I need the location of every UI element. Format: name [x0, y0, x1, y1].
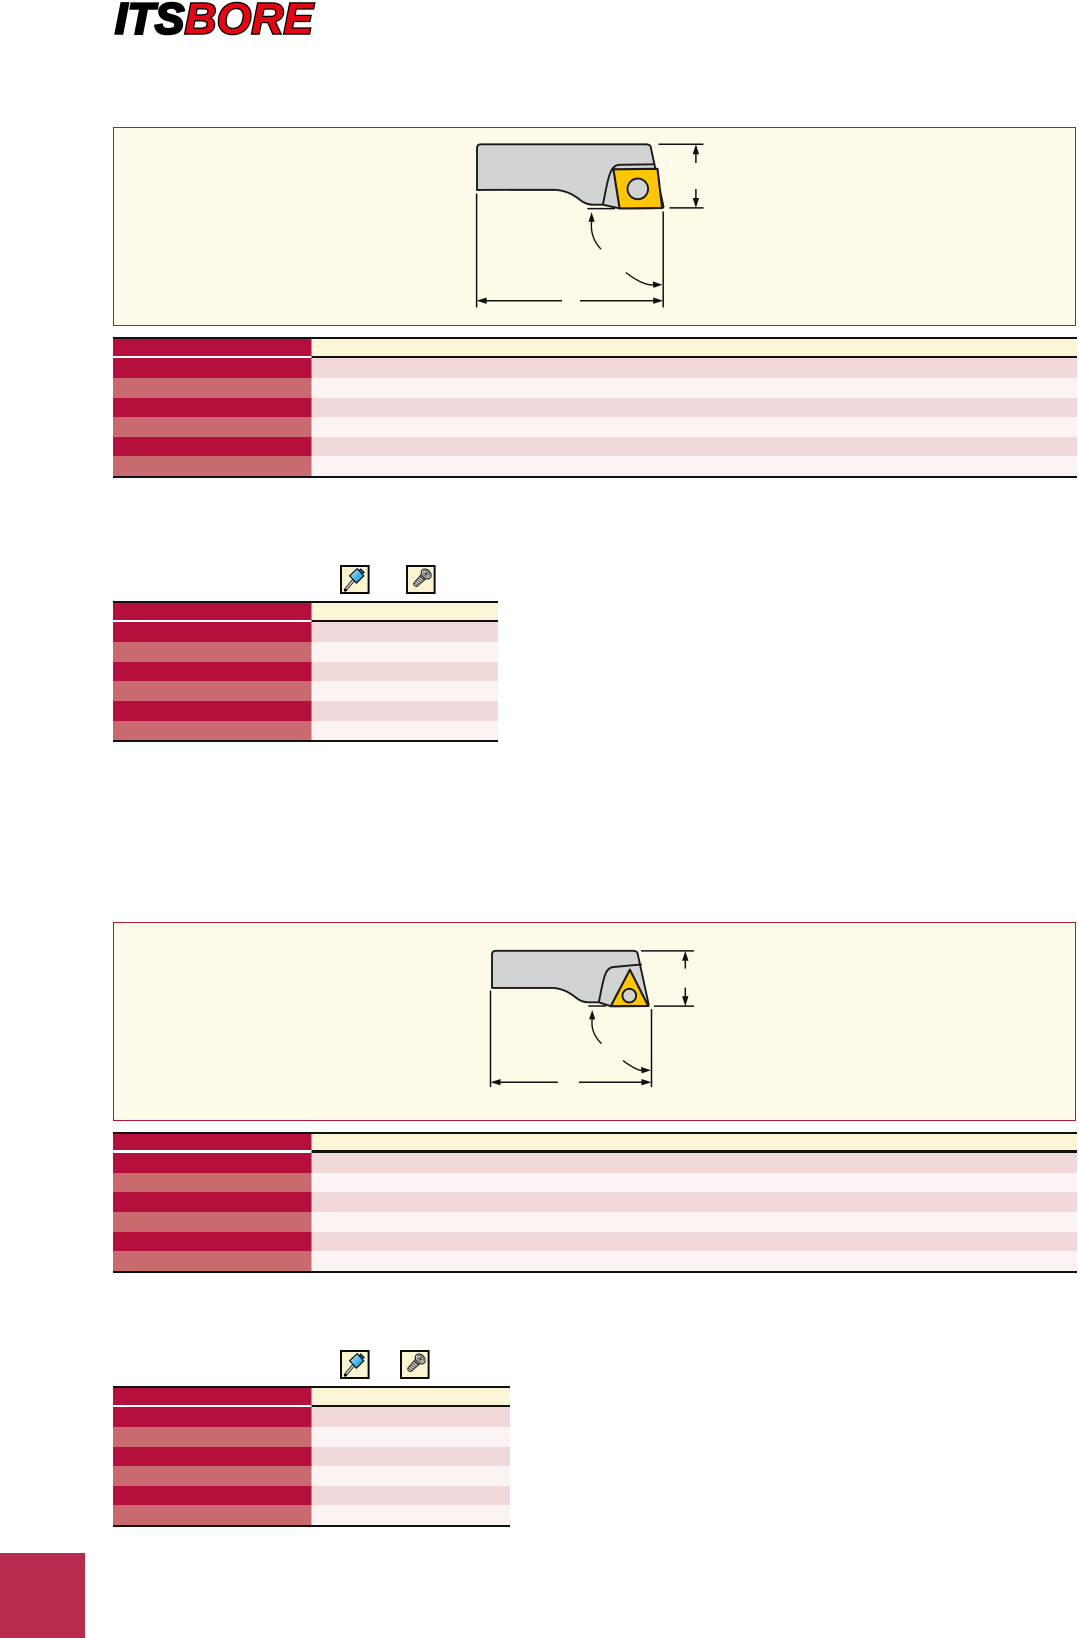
svg-text:ITSBORE: ITSBORE [115, 0, 315, 44]
